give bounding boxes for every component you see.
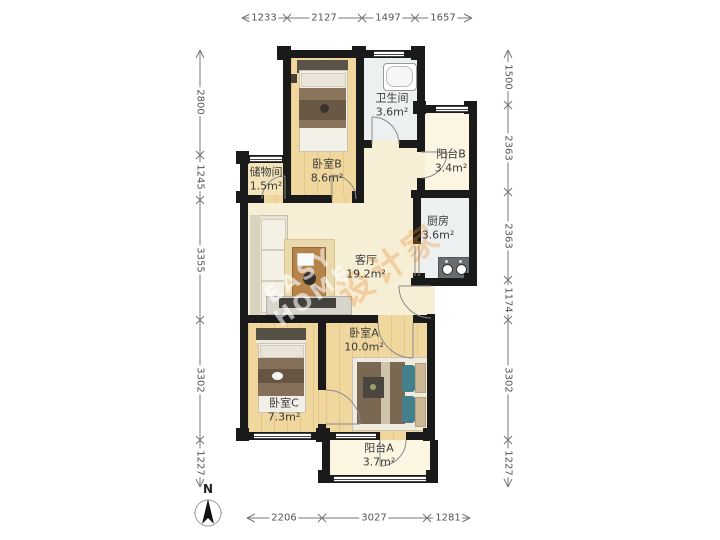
room-label-living: 客厅 19.2m² — [346, 254, 386, 283]
bed-a-teal-blanket — [402, 365, 415, 392]
bed-b-pillow — [301, 73, 346, 87]
room-name: 阳台A — [363, 442, 396, 456]
dim-right-5: 3302 — [503, 365, 514, 394]
bathtub-basin — [386, 66, 413, 87]
room-area: 3.7m² — [363, 456, 396, 470]
room-name: 厨房 — [422, 215, 455, 229]
dim-top-2: 2127 — [309, 13, 338, 24]
bed-c-headboard — [256, 328, 306, 340]
dim-left-1: 2800 — [195, 87, 206, 116]
window — [250, 156, 282, 162]
bed-b-decor — [320, 104, 329, 113]
balcony-a-doorway — [380, 432, 406, 440]
room-area: 3.6m² — [376, 106, 409, 120]
room-label-bedroom-b: 卧室B 8.6m² — [311, 158, 344, 187]
dim-right-1: 1500 — [503, 62, 514, 91]
dim-left-3: 3355 — [195, 245, 206, 274]
entry-doorway — [427, 286, 435, 314]
stove-knob — [445, 260, 448, 263]
balcony-b-doorway — [417, 152, 425, 178]
column — [352, 191, 364, 203]
north-needle — [202, 499, 214, 524]
room-label-storage: 储物间 1.5m² — [250, 166, 283, 195]
column — [236, 191, 248, 203]
floorplan-canvas: 1233 2127 1497 1657 2206 3027 1281 2800 … — [0, 0, 720, 540]
bed-c-pillow — [260, 345, 304, 358]
room-name: 卧室C — [268, 397, 301, 411]
wall — [413, 315, 435, 323]
sofa-back — [250, 215, 260, 315]
wall — [356, 50, 364, 203]
dim-bottom-1: 2206 — [269, 513, 298, 524]
dim-bottom-3: 1281 — [433, 513, 462, 524]
room-label-balcony-b: 阳台B 3.4m² — [435, 148, 468, 177]
wall — [427, 314, 435, 440]
room-label-bedroom-a: 卧室A 10.0m² — [344, 327, 384, 356]
dim-right-3: 2363 — [503, 221, 514, 250]
north-compass — [193, 499, 223, 526]
column — [236, 151, 249, 164]
column — [464, 273, 477, 286]
dim-right-6: 1227 — [503, 448, 514, 477]
column — [277, 46, 291, 60]
room-name: 客厅 — [346, 254, 386, 268]
room-area: 10.0m² — [344, 341, 384, 355]
window — [334, 476, 426, 482]
dim-bottom-2: 3027 — [359, 513, 388, 524]
dim-left-4: 3302 — [195, 365, 206, 394]
dim-left-5: 1227 — [195, 448, 206, 477]
column — [316, 428, 330, 442]
room-name: 卧室A — [344, 327, 384, 341]
wall — [411, 190, 477, 198]
stove-burner — [442, 264, 453, 275]
room-label-kitchen: 厨房 3.6m² — [422, 215, 455, 244]
room-name: 卧室B — [311, 158, 344, 172]
column — [413, 101, 426, 114]
column — [352, 46, 366, 58]
bed-c-decor — [272, 372, 283, 380]
room-name: 储物间 — [250, 166, 283, 180]
window — [436, 106, 468, 112]
north-label: N — [203, 482, 213, 496]
window — [254, 433, 311, 439]
room-label-balcony-a: 阳台A 3.7m² — [363, 442, 396, 471]
dim-top-4: 1657 — [428, 13, 457, 24]
room-label-bathroom: 卫生间 3.6m² — [376, 92, 409, 121]
bed-a-tray-item — [370, 384, 376, 390]
room-label-bedroom-c: 卧室C 7.3m² — [268, 397, 301, 426]
dim-top-3: 1497 — [373, 13, 402, 24]
room-area: 3.4m² — [435, 162, 468, 176]
wall — [240, 315, 378, 323]
column — [413, 273, 425, 286]
bed-a-pillow — [415, 363, 426, 393]
wall — [318, 323, 326, 390]
wall — [356, 140, 372, 148]
bed-a-teal-blanket — [402, 396, 415, 423]
bedroom-a-doorway — [378, 315, 413, 323]
room-area: 1.5m² — [250, 180, 283, 194]
column — [426, 470, 438, 483]
wall — [283, 155, 291, 203]
window — [336, 433, 376, 439]
column — [318, 470, 330, 483]
room-name: 阳台B — [435, 148, 468, 162]
dim-right-2: 2363 — [503, 133, 514, 162]
bed-a-pillow — [415, 397, 426, 427]
column — [236, 428, 249, 441]
dim-right-4: 1174 — [503, 285, 514, 314]
room-area: 8.6m² — [311, 172, 344, 186]
column — [411, 46, 425, 60]
dim-left-2: 1245 — [195, 162, 206, 191]
sofa-cushion — [261, 219, 286, 250]
room-area: 19.2m² — [346, 268, 386, 282]
wall — [283, 50, 291, 163]
wall — [417, 113, 425, 152]
room-area: 3.6m² — [422, 229, 455, 243]
stove-knob — [459, 260, 462, 263]
dimension-line-right — [504, 50, 512, 487]
column — [423, 428, 435, 441]
room-name: 卫生间 — [376, 92, 409, 106]
room-area: 7.3m² — [268, 411, 301, 425]
storage-doorway — [262, 195, 283, 203]
dim-top-1: 1233 — [249, 13, 278, 24]
hallway-floor — [364, 140, 417, 203]
bedroom-c-doorway — [318, 390, 326, 424]
window — [374, 51, 404, 57]
